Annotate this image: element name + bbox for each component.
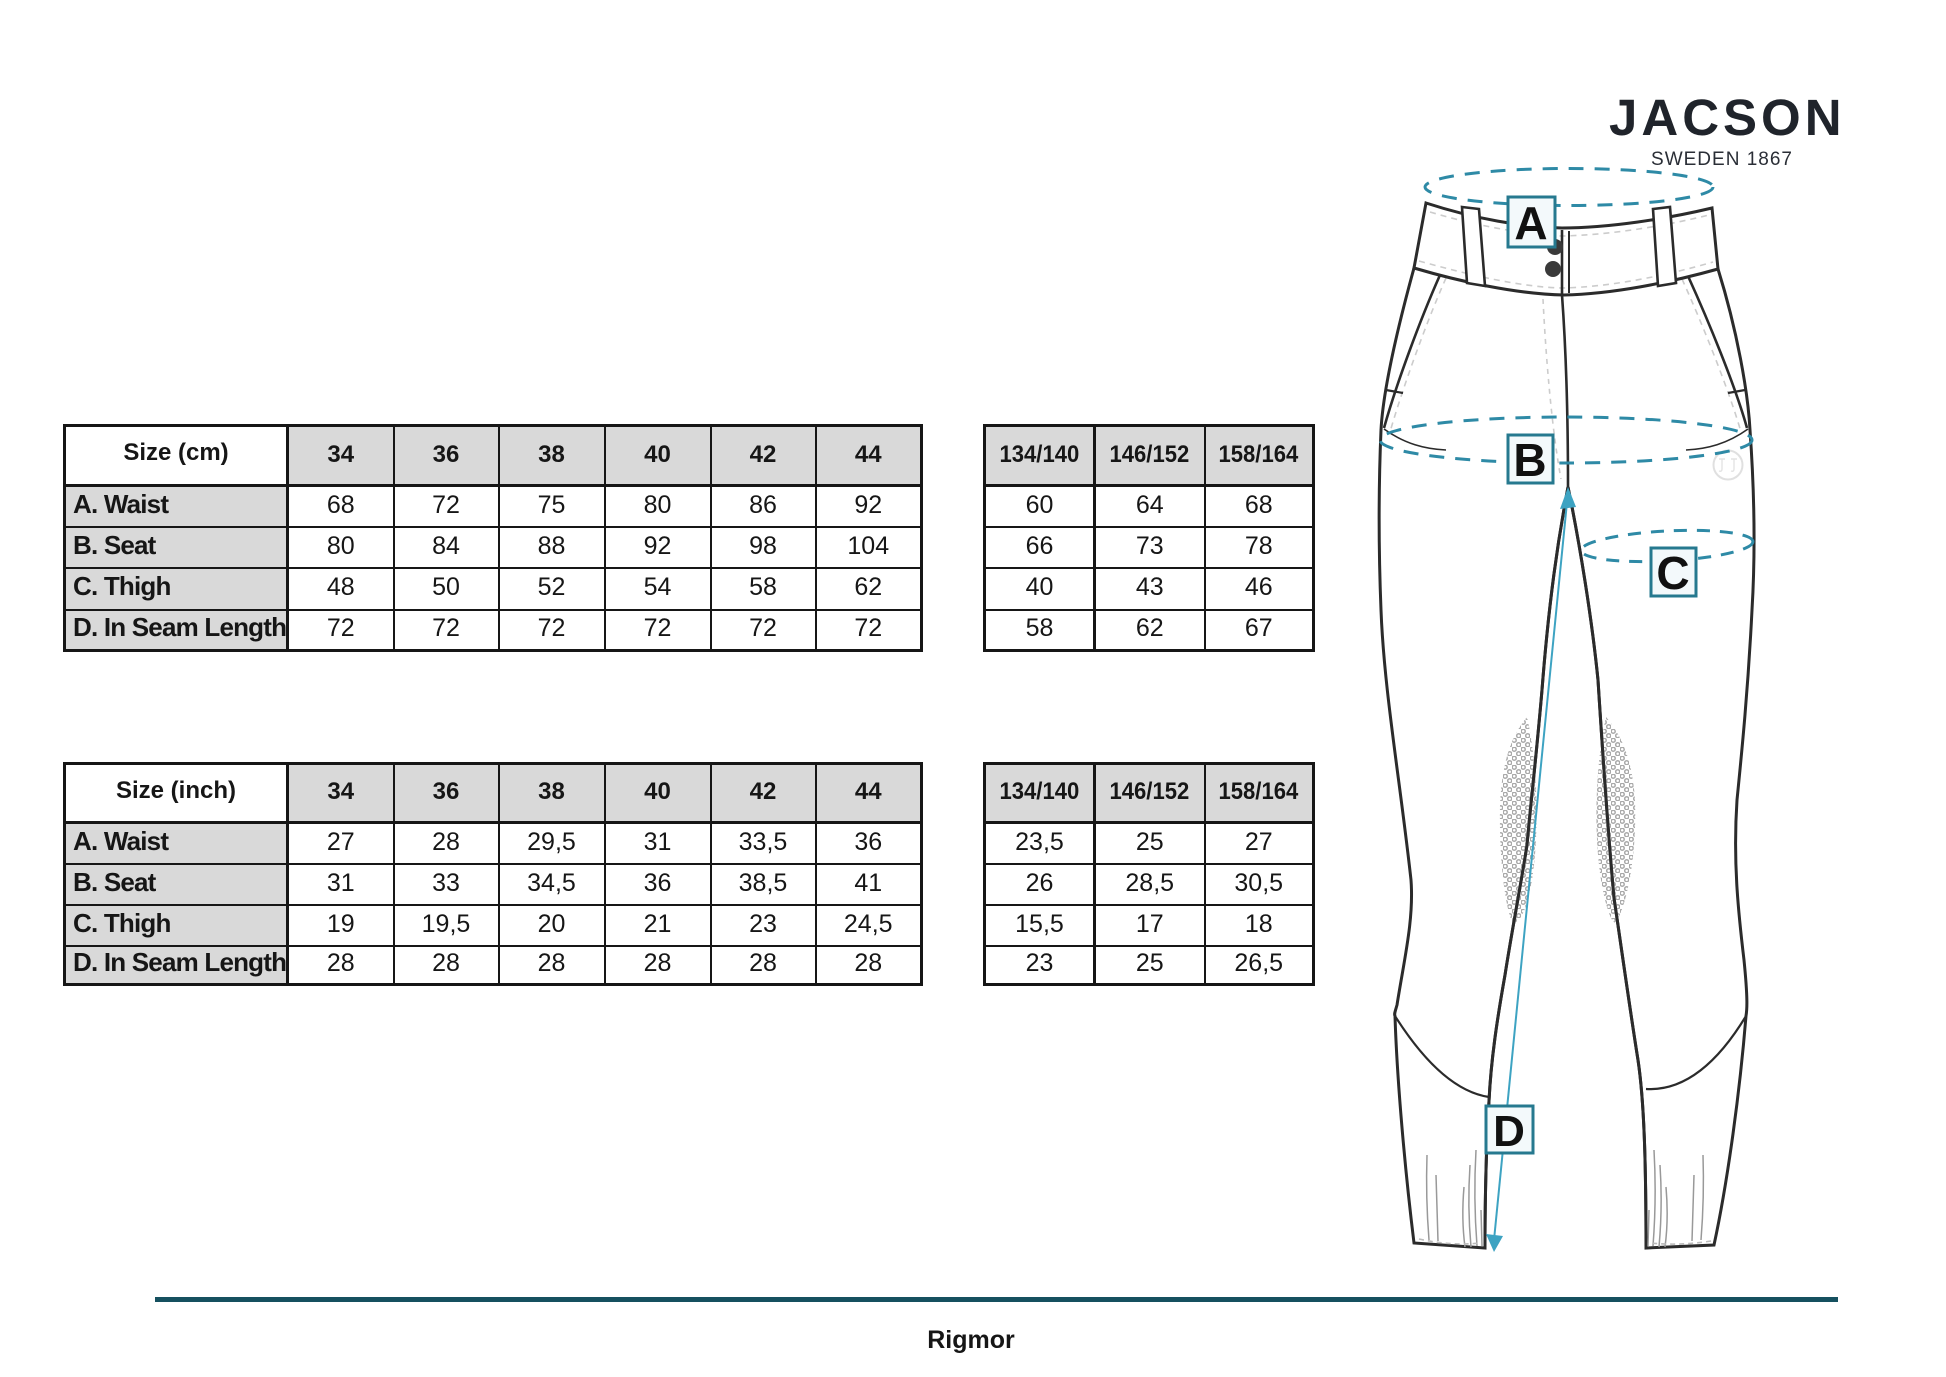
svg-text:D: D [1493, 1107, 1525, 1156]
svg-text:C: C [1656, 547, 1689, 599]
svg-text:A: A [1514, 197, 1547, 249]
svg-text:B: B [1513, 434, 1546, 486]
